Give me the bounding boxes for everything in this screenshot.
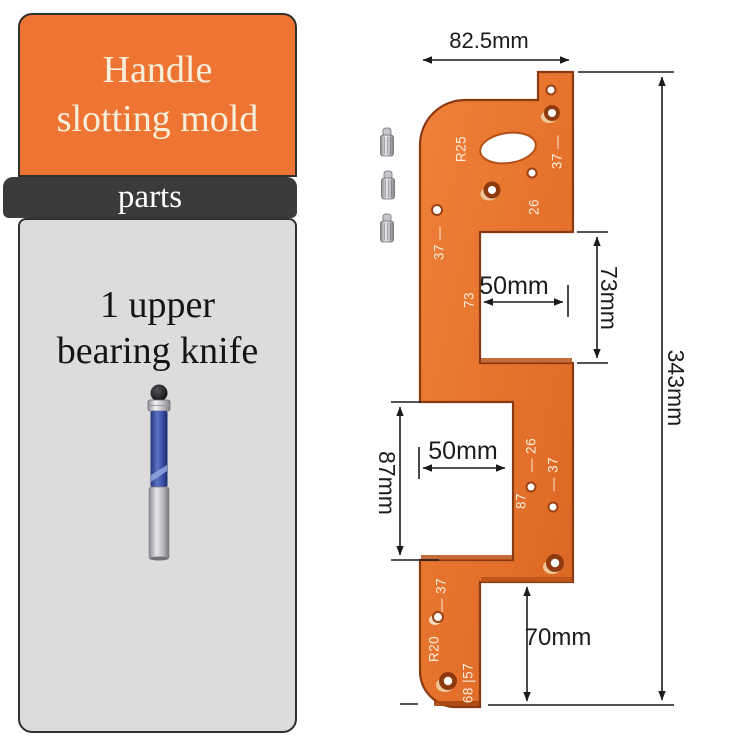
marking-87: 87 <box>514 493 529 509</box>
dim-notch1-height-label: 73mm <box>596 266 622 330</box>
marking-37-bottom: — 37 <box>434 578 449 612</box>
technical-drawing: R25 37 — 26 37 — 73 — 26 — 37 87 — 37 R2… <box>0 0 750 750</box>
marking-26-top: 26 <box>527 199 542 215</box>
dim-notch1-depth-label: 50mm <box>479 272 548 300</box>
marking-68-57: 68 |57 <box>461 663 476 703</box>
marking-26-mid: — 26 <box>524 438 539 472</box>
dim-overall-height-label: 343mm <box>663 350 689 427</box>
plate-hole <box>528 169 537 178</box>
pin-icon <box>381 214 394 242</box>
marking-73: 73 <box>462 292 477 308</box>
marking-37-top-left: 37 — <box>432 226 447 260</box>
plate-hole <box>527 483 536 492</box>
plate-edge-shade <box>481 358 572 363</box>
marking-37-mid: — 37 <box>546 457 561 491</box>
plate-hole <box>549 503 558 512</box>
product-image: Handle slotting mold parts 1 upper beari… <box>0 0 750 750</box>
marking-37-top-right: 37 — <box>550 135 565 169</box>
dim-notch2-depth-label: 50mm <box>428 437 497 465</box>
pin-icon <box>382 171 395 199</box>
dim-notch2-height-label: 87mm <box>374 451 400 515</box>
plate-edge-shade <box>481 577 572 582</box>
marking-r25: R25 <box>454 136 469 162</box>
marking-r20: R20 <box>427 636 442 662</box>
plate-hole <box>432 205 442 215</box>
pin-icon <box>381 128 394 156</box>
dim-bottom-offset-label: 70mm <box>525 624 592 651</box>
plate-hole <box>547 86 556 95</box>
dim-top-width-label: 82.5mm <box>449 28 528 53</box>
template-plate: R25 37 — 26 37 — 73 — 26 — 37 87 — 37 R2… <box>420 72 573 707</box>
